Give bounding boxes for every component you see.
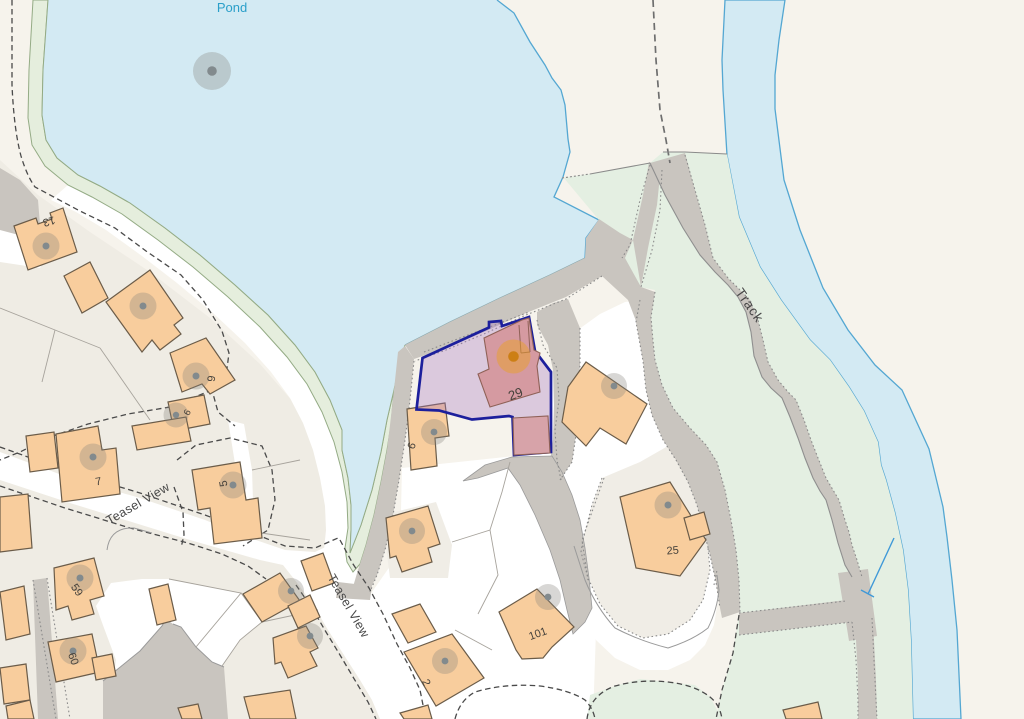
svg-text:9: 9 bbox=[206, 375, 218, 382]
svg-text:Pond: Pond bbox=[217, 0, 247, 15]
svg-text:25: 25 bbox=[666, 545, 679, 558]
